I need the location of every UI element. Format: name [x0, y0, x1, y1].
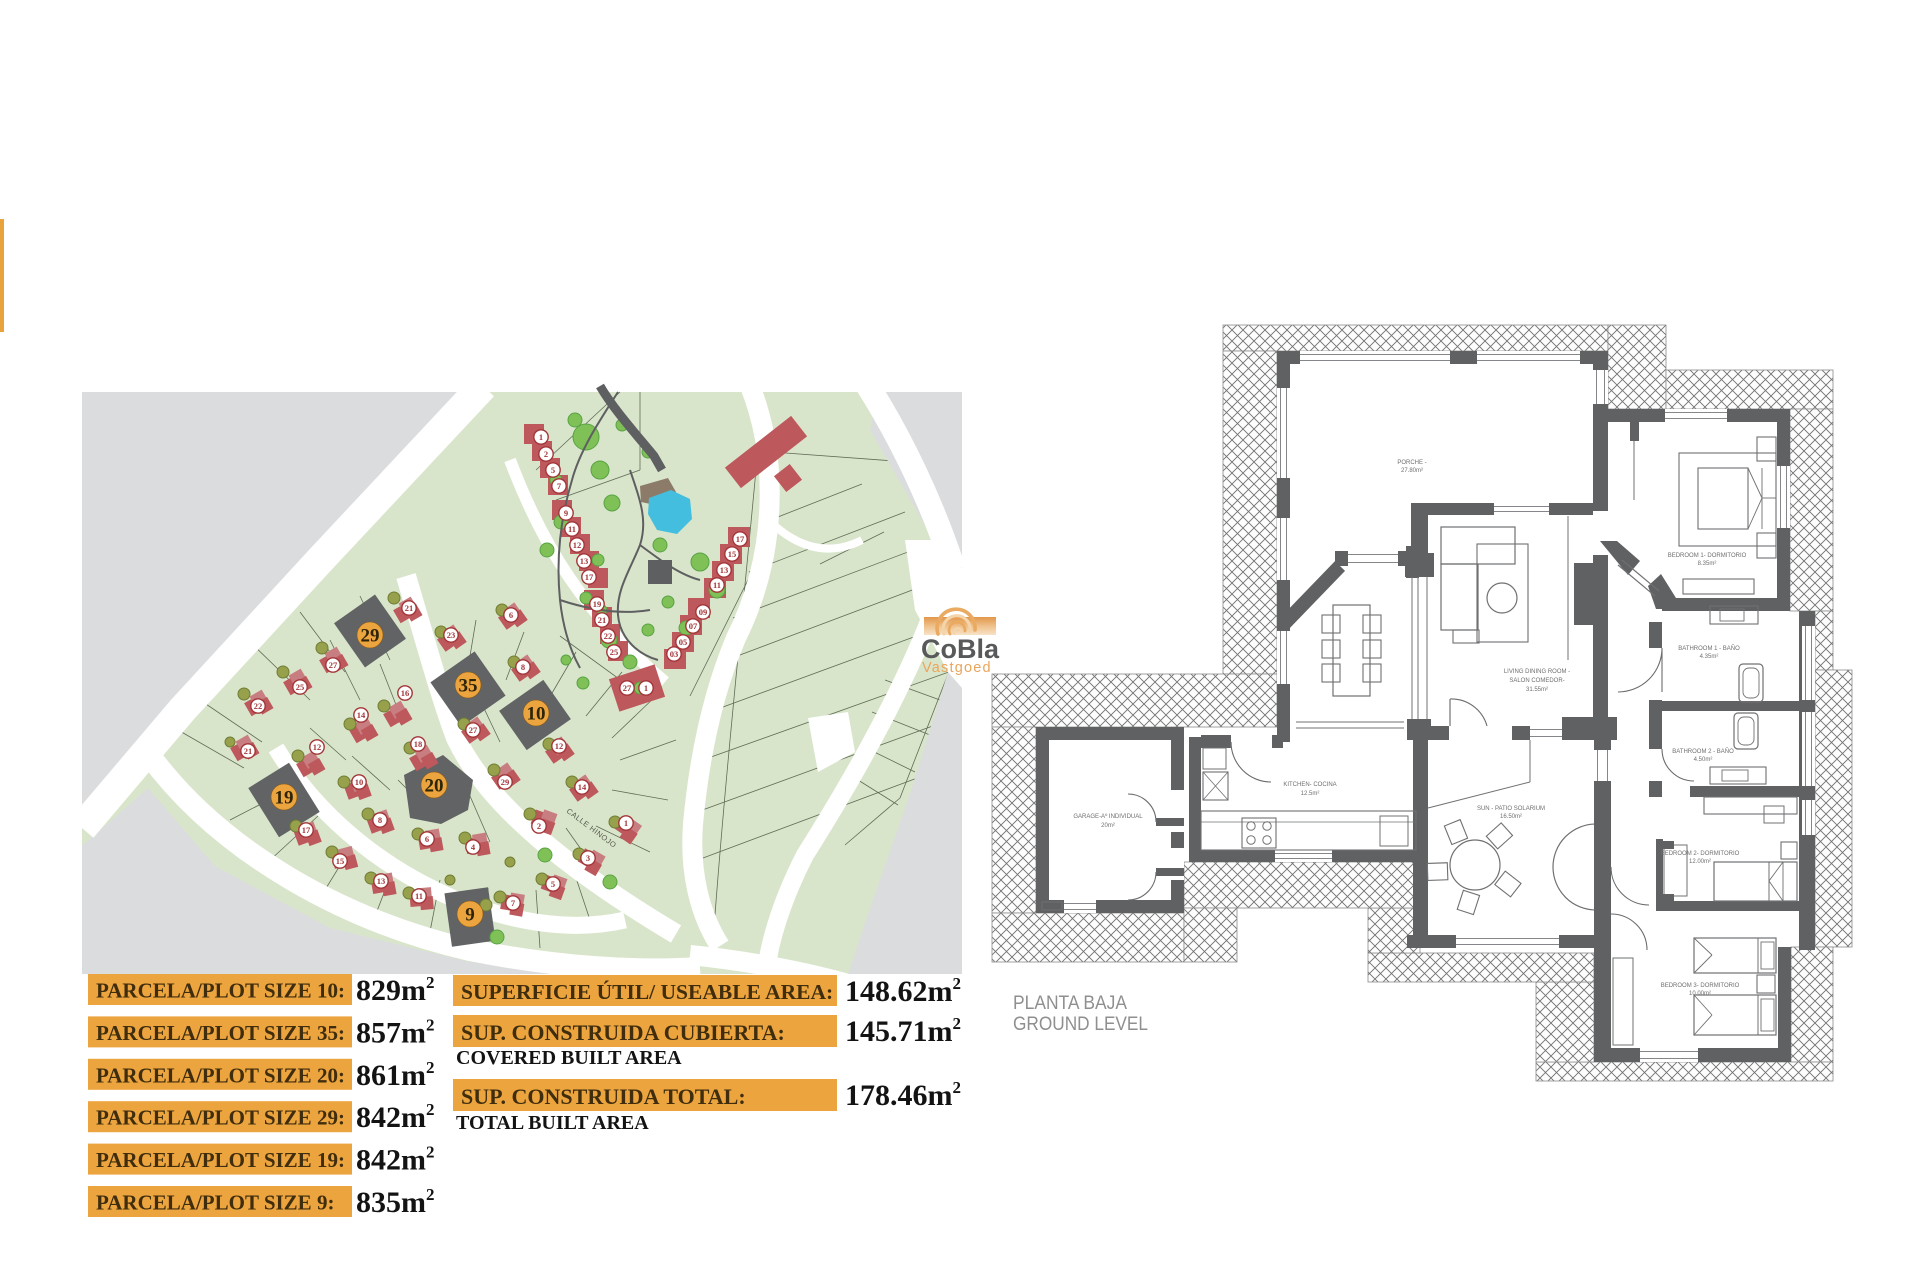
svg-text:145.71m2: 145.71m2: [845, 1014, 961, 1048]
svg-text:829m2: 829m2: [356, 973, 435, 1007]
svg-text:16.50m²: 16.50m²: [1500, 814, 1522, 820]
svg-text:13: 13: [580, 556, 589, 566]
svg-text:12.5m²: 12.5m²: [1301, 791, 1320, 797]
svg-text:BATHROOM 2 - BAÑO: BATHROOM 2 - BAÑO: [1672, 748, 1734, 755]
svg-text:SUP. CONSTRUIDA TOTAL:: SUP. CONSTRUIDA TOTAL:: [461, 1084, 746, 1109]
svg-text:6: 6: [509, 610, 513, 620]
svg-text:148.62m2: 148.62m2: [845, 974, 961, 1008]
svg-text:21: 21: [244, 746, 253, 756]
svg-text:17: 17: [585, 572, 594, 582]
svg-text:PARCELA/PLOT SIZE 35:: PARCELA/PLOT SIZE 35:: [96, 1021, 345, 1045]
svg-text:23: 23: [447, 630, 456, 640]
svg-text:PORCHE -: PORCHE -: [1397, 460, 1426, 466]
svg-text:8.35m²: 8.35m²: [1698, 561, 1717, 567]
svg-text:178.46m2: 178.46m2: [845, 1078, 961, 1112]
svg-text:8: 8: [521, 662, 525, 672]
svg-text:BEDROOM 3- DORMITORIO: BEDROOM 3- DORMITORIO: [1661, 983, 1740, 989]
svg-text:13: 13: [720, 565, 729, 575]
svg-text:21: 21: [598, 615, 607, 625]
svg-text:6: 6: [425, 834, 429, 844]
svg-text:21: 21: [405, 603, 414, 613]
svg-text:3: 3: [586, 853, 590, 863]
svg-text:18: 18: [414, 739, 423, 749]
svg-text:SUP. CONSTRUIDA CUBIERTA:: SUP. CONSTRUIDA CUBIERTA:: [461, 1020, 785, 1045]
svg-text:PARCELA/PLOT SIZE 19:: PARCELA/PLOT SIZE 19:: [96, 1148, 345, 1172]
svg-text:10: 10: [527, 704, 546, 725]
svg-text:1: 1: [539, 432, 543, 442]
svg-text:GROUND LEVEL: GROUND LEVEL: [1013, 1014, 1148, 1035]
svg-text:12.00m²: 12.00m²: [1689, 859, 1711, 865]
svg-text:15: 15: [336, 856, 345, 866]
svg-text:PARCELA/PLOT SIZE 29:: PARCELA/PLOT SIZE 29:: [96, 1106, 345, 1130]
svg-text:TOTAL BUILT AREA: TOTAL BUILT AREA: [456, 1112, 649, 1134]
svg-text:09: 09: [699, 607, 708, 617]
svg-text:8: 8: [378, 815, 382, 825]
svg-text:12: 12: [555, 741, 564, 751]
svg-text:07: 07: [689, 621, 698, 631]
svg-text:16: 16: [401, 688, 410, 698]
svg-text:05: 05: [679, 637, 688, 647]
svg-text:COVERED BUILT AREA: COVERED BUILT AREA: [456, 1047, 682, 1069]
svg-text:842m2: 842m2: [356, 1143, 435, 1177]
svg-text:11: 11: [415, 891, 423, 901]
svg-text:835m2: 835m2: [356, 1185, 435, 1219]
svg-text:5: 5: [551, 879, 555, 889]
svg-text:PLANTA BAJA: PLANTA BAJA: [1013, 993, 1127, 1014]
svg-text:11: 11: [568, 524, 576, 534]
svg-text:22: 22: [254, 701, 263, 711]
svg-text:BEDROOM 1- DORMITORIO: BEDROOM 1- DORMITORIO: [1668, 553, 1747, 559]
svg-text:2: 2: [537, 821, 541, 831]
svg-text:SALON COMEDOR-: SALON COMEDOR-: [1509, 678, 1564, 684]
svg-text:KITCHEN- COCINA: KITCHEN- COCINA: [1283, 782, 1336, 788]
svg-text:1: 1: [624, 818, 628, 828]
svg-text:842m2: 842m2: [356, 1100, 435, 1134]
svg-text:25: 25: [296, 682, 305, 692]
svg-text:PARCELA/PLOT SIZE 9:: PARCELA/PLOT SIZE 9:: [96, 1191, 334, 1215]
svg-text:LIVING DINING ROOM -: LIVING DINING ROOM -: [1504, 669, 1570, 675]
svg-text:PARCELA/PLOT SIZE 20:: PARCELA/PLOT SIZE 20:: [96, 1063, 345, 1087]
svg-text:15: 15: [728, 549, 737, 559]
svg-text:5: 5: [551, 465, 555, 475]
svg-text:12: 12: [313, 742, 322, 752]
svg-text:14: 14: [578, 782, 587, 792]
svg-text:10: 10: [355, 777, 364, 787]
svg-text:4.35m²: 4.35m²: [1700, 654, 1719, 660]
svg-text:11: 11: [713, 580, 721, 590]
svg-text:25: 25: [610, 647, 619, 657]
svg-text:20m²: 20m²: [1101, 823, 1115, 829]
svg-text:29: 29: [361, 626, 380, 647]
svg-text:13: 13: [377, 876, 386, 886]
svg-text:9: 9: [564, 508, 568, 518]
svg-text:22: 22: [604, 631, 613, 641]
svg-text:12: 12: [573, 540, 582, 550]
svg-text:14: 14: [357, 710, 366, 720]
svg-text:27.80m²: 27.80m²: [1401, 468, 1423, 474]
svg-text:BATHROOM 1 - BAÑO: BATHROOM 1 - BAÑO: [1678, 645, 1740, 652]
svg-text:03: 03: [670, 649, 679, 659]
svg-text:27: 27: [469, 725, 478, 735]
svg-text:17: 17: [302, 825, 311, 835]
svg-text:19: 19: [593, 599, 602, 609]
svg-text:9: 9: [465, 905, 475, 926]
svg-text:SUN - PATIO SOLARIUM: SUN - PATIO SOLARIUM: [1477, 806, 1545, 812]
svg-text:19: 19: [275, 788, 294, 809]
svg-text:17: 17: [736, 534, 745, 544]
svg-text:SUPERFICIE ÚTIL/ USEABLE AREA:: SUPERFICIE ÚTIL/ USEABLE AREA:: [461, 980, 833, 1004]
svg-text:GARAGE-Aº INDIVIDUAL: GARAGE-Aº INDIVIDUAL: [1073, 813, 1143, 820]
svg-text:Vastgoed: Vastgoed: [922, 660, 992, 676]
svg-text:4.50m²: 4.50m²: [1694, 757, 1713, 763]
svg-text:20: 20: [425, 776, 444, 797]
svg-text:857m2: 857m2: [356, 1015, 435, 1049]
svg-text:29: 29: [501, 777, 510, 787]
svg-text:1: 1: [644, 683, 648, 693]
svg-text:31.55m²: 31.55m²: [1526, 687, 1548, 693]
svg-text:27: 27: [329, 660, 338, 670]
svg-text:861m2: 861m2: [356, 1058, 435, 1092]
svg-text:PARCELA/PLOT SIZE 10:: PARCELA/PLOT SIZE 10:: [96, 979, 345, 1003]
svg-text:2: 2: [544, 449, 548, 459]
svg-text:27: 27: [623, 683, 632, 693]
svg-text:10.00m²: 10.00m²: [1689, 991, 1711, 997]
svg-text:35: 35: [459, 676, 478, 697]
svg-text:BEDROOM 2- DORMITORIO: BEDROOM 2- DORMITORIO: [1661, 851, 1740, 857]
